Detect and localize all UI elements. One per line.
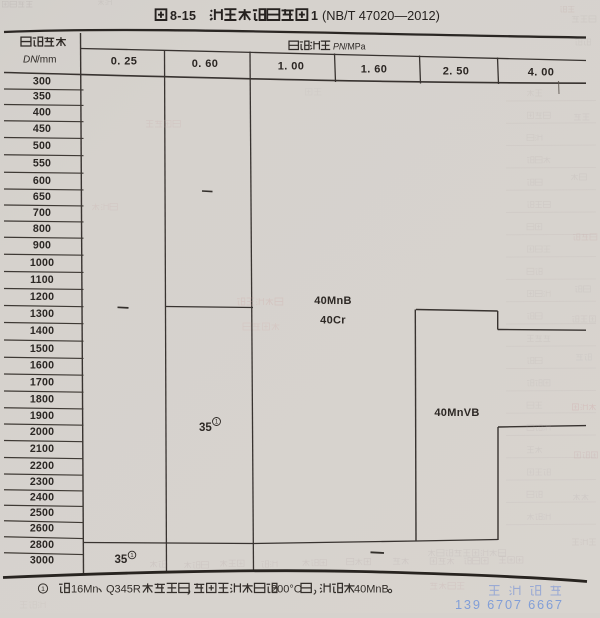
svg-text:2600: 2600	[30, 523, 54, 535]
svg-text:8-15: 8-15	[170, 9, 196, 23]
svg-text:/MPa: /MPa	[345, 42, 366, 52]
svg-text:2200: 2200	[30, 460, 54, 472]
svg-text:450: 450	[33, 123, 51, 135]
svg-text:40MnB: 40MnB	[314, 295, 352, 307]
svg-text:1900: 1900	[30, 410, 54, 422]
svg-text:650: 650	[33, 191, 51, 203]
svg-text:2500: 2500	[30, 507, 54, 519]
svg-text:2300: 2300	[30, 476, 54, 488]
svg-text:1: 1	[41, 586, 45, 593]
svg-text:1500: 1500	[30, 343, 54, 355]
svg-text:1. 00: 1. 00	[278, 61, 304, 73]
svg-text:Q345R: Q345R	[106, 584, 141, 596]
svg-text:4. 00: 4. 00	[528, 67, 554, 79]
svg-text:/mm: /mm	[37, 55, 56, 66]
svg-text:1800: 1800	[30, 394, 54, 406]
svg-text:3000: 3000	[30, 555, 54, 567]
svg-text:1: 1	[311, 9, 318, 23]
svg-text:0. 60: 0. 60	[192, 58, 218, 70]
svg-text:35: 35	[115, 554, 128, 566]
svg-text:200°C: 200°C	[271, 584, 302, 596]
svg-text:550: 550	[33, 158, 51, 170]
svg-text:2400: 2400	[30, 492, 54, 504]
svg-text:(NB/T 47020—2012): (NB/T 47020—2012)	[322, 8, 440, 23]
svg-text:0. 25: 0. 25	[111, 56, 137, 68]
svg-text:350: 350	[33, 91, 51, 103]
svg-text:1600: 1600	[30, 360, 54, 372]
svg-text:1700: 1700	[30, 377, 54, 389]
svg-text:1: 1	[130, 553, 133, 559]
svg-text:900: 900	[33, 240, 51, 252]
svg-text:2. 50: 2. 50	[443, 66, 469, 78]
svg-text:35: 35	[199, 422, 212, 434]
svg-text:1. 60: 1. 60	[361, 64, 387, 76]
svg-text:600: 600	[33, 175, 51, 187]
svg-text:DN: DN	[23, 55, 38, 66]
svg-text:400: 400	[33, 107, 51, 119]
svg-text:1100: 1100	[30, 274, 54, 286]
svg-text:800: 800	[33, 223, 51, 235]
svg-text:40Cr: 40Cr	[320, 315, 346, 327]
svg-text:700: 700	[33, 207, 51, 219]
svg-text:2800: 2800	[30, 539, 54, 551]
svg-text:2000: 2000	[30, 426, 54, 438]
svg-text:139 6707 6667: 139 6707 6667	[455, 597, 564, 612]
svg-text:1400: 1400	[30, 325, 54, 337]
svg-text:1200: 1200	[30, 291, 54, 303]
svg-text:40MnB: 40MnB	[354, 584, 389, 596]
svg-text:40MnVB: 40MnVB	[434, 407, 479, 419]
svg-text:16Mn: 16Mn	[71, 584, 99, 596]
svg-text:1000: 1000	[30, 257, 54, 269]
svg-text:500: 500	[33, 140, 51, 152]
svg-text:1300: 1300	[30, 308, 54, 320]
svg-text:300: 300	[33, 76, 51, 88]
svg-text:2100: 2100	[30, 443, 54, 455]
svg-text:PN: PN	[333, 42, 346, 52]
